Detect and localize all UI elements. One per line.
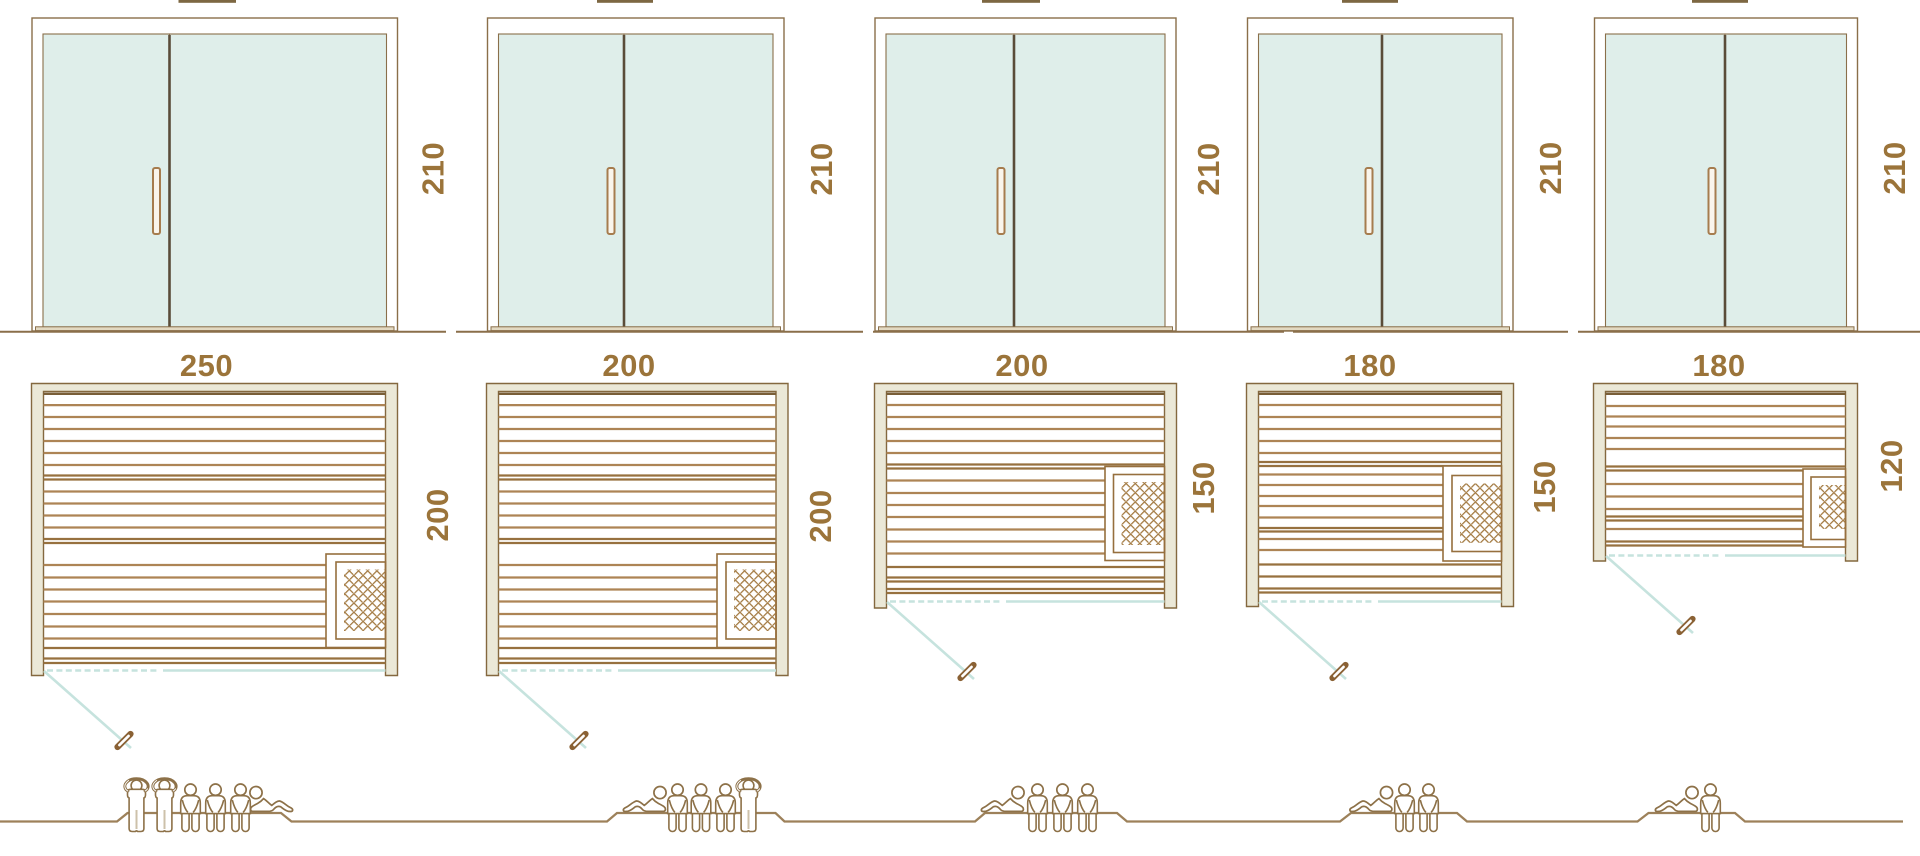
svg-text:150: 150 bbox=[1527, 460, 1562, 513]
svg-text:210: 210 bbox=[804, 142, 839, 195]
svg-text:200: 200 bbox=[602, 348, 655, 383]
svg-text:210: 210 bbox=[1191, 142, 1226, 195]
svg-text:180: 180 bbox=[1343, 348, 1396, 383]
svg-text:180: 180 bbox=[1692, 348, 1745, 383]
svg-text:200: 200 bbox=[803, 489, 838, 542]
svg-text:150: 150 bbox=[1186, 461, 1221, 514]
svg-text:200: 200 bbox=[995, 348, 1048, 383]
svg-text:120: 120 bbox=[1874, 439, 1909, 492]
svg-text:210: 210 bbox=[1877, 141, 1912, 194]
svg-text:210: 210 bbox=[416, 142, 451, 195]
svg-text:250: 250 bbox=[180, 348, 233, 383]
svg-text:200: 200 bbox=[420, 488, 455, 541]
svg-text:210: 210 bbox=[1533, 141, 1568, 194]
